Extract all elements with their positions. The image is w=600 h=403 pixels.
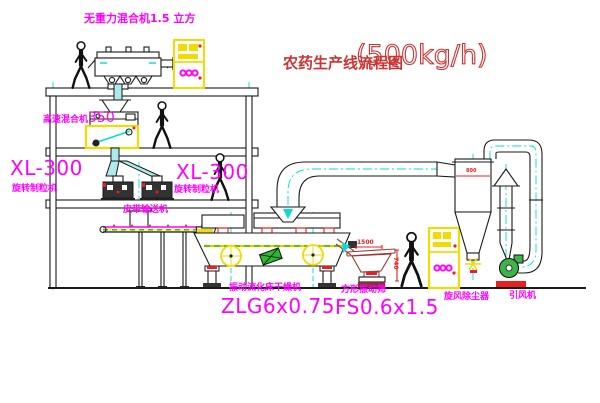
belt-conveyor-label: 皮带输送机 [123,206,168,215]
spring-support-left [203,266,221,287]
sieve-height-dim: 740 [392,257,399,270]
sieve-length-dim: 1500 [357,239,374,246]
cyclone-outlet-duct [484,140,543,273]
high-speed-mixer-label: 高速混合机350 [43,109,115,125]
granulator-right-name: 旋转制粒机 [174,186,219,195]
square-sieve [336,239,399,287]
vibration-motor-right [303,245,323,265]
cyclone-label: 旋风除尘器 [444,293,489,302]
granulator-left-model2: XL-300 [10,158,83,178]
dryer-name: 振动流化床干燥机 [229,284,301,293]
dryer-model: ZLG6x0.75 [221,296,335,316]
fan-label: 引风机 [509,292,536,301]
induced-draft-fan [496,255,526,287]
spring-support-right [318,266,336,287]
person-ground [402,233,421,286]
control-cabinet-ground [429,228,459,288]
sieve-name: 方形振动筛 [341,286,386,295]
pesticide-line-flow-diagram: 农药生产线流程图 (500kg/h) 无重力混合机1.5 立方 高速混合机350… [0,0,600,403]
exhaust-stack [492,169,520,260]
cyclone-diameter-dim: 800 [466,168,476,174]
person-roof [73,42,90,88]
granulator-right [140,176,174,201]
exhaust-duct [271,162,437,222]
diagram-title-capacity: (500kg/h) [356,40,488,71]
granulator-right-model: XL-300 [176,162,249,182]
sieve-model: FS0.6x1.5 [335,297,439,317]
gravity-mixer-label: 无重力混合机1.5 立方 [84,13,195,24]
granulator-left-name: 旋转制粒机 [12,185,57,194]
person-second-floor [154,102,171,148]
fluid-bed-dryer [194,213,357,287]
granulator-left [101,176,135,201]
control-cabinet-top [174,40,204,88]
y-splitter-chute [106,161,160,176]
vibration-motor-left [221,246,241,266]
